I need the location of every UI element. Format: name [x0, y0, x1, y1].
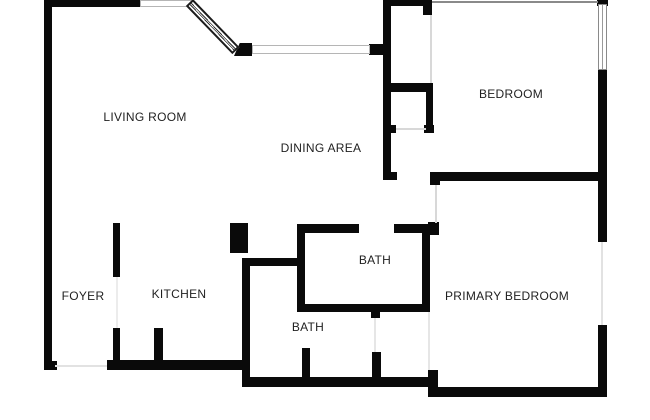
foyer-kitchen-wall-upper: [113, 223, 120, 277]
primary-door-leaf: [435, 185, 437, 223]
room-label-bath-lower: BATH: [292, 320, 324, 334]
bottom-wall-bath: [242, 377, 432, 387]
window-living-corner: [186, 0, 240, 54]
bottom-wall-kitchen: [107, 360, 250, 370]
entry-threshold-line: [55, 365, 107, 367]
left-wall: [44, 0, 52, 370]
room-label-primary-bedroom: PRIMARY BEDROOM: [445, 289, 569, 303]
primary-closet-line: [428, 312, 430, 370]
bath-lower-door-leaf: [374, 318, 376, 352]
bedroom-top-wall: [383, 0, 424, 6]
room-label-kitchen: KITCHEN: [152, 287, 207, 301]
dining-wall-foot: [391, 172, 397, 180]
room-label-foyer: FOYER: [62, 289, 105, 303]
bath-left-wall: [297, 224, 305, 312]
foyer-door-opening-line: [116, 277, 118, 328]
window-bedroom-right: [598, 4, 607, 70]
bedroom-bottom-wall-cap: [430, 172, 440, 185]
top-wall-living: [44, 0, 141, 7]
bottom-wall-primary: [430, 387, 607, 397]
bath-bottom-wall: [297, 304, 430, 312]
bedroom-top-edge-line: [432, 1, 598, 3]
right-wall-upper: [598, 69, 607, 242]
room-label-dining-area: DINING AREA: [281, 141, 362, 155]
lower-bath-stub-left: [302, 348, 310, 377]
room-label-bedroom: BEDROOM: [479, 87, 543, 101]
bath-right-wall: [422, 224, 430, 312]
window-living-front: [252, 45, 370, 54]
room-label-living-room: LIVING ROOM: [103, 110, 186, 124]
bedroom-door-leaf: [430, 15, 432, 83]
kitchen-stub: [154, 328, 163, 366]
kitchen-hall-wall: [245, 258, 305, 266]
floor-plan: LIVING ROOMDINING AREABEDROOMFOYERKITCHE…: [0, 0, 650, 420]
lower-bath-stub-right: [372, 352, 381, 377]
closet-opening-line: [396, 128, 426, 130]
closet-left-stub: [383, 125, 396, 133]
bedroom-door-jamb: [423, 0, 432, 15]
room-label-bath-upper: BATH: [359, 253, 391, 267]
bedroom-bottom-wall: [430, 172, 607, 181]
kitchen-column: [230, 223, 248, 253]
bath-top-wall-left: [297, 224, 359, 233]
primary-window-line: [601, 242, 603, 325]
